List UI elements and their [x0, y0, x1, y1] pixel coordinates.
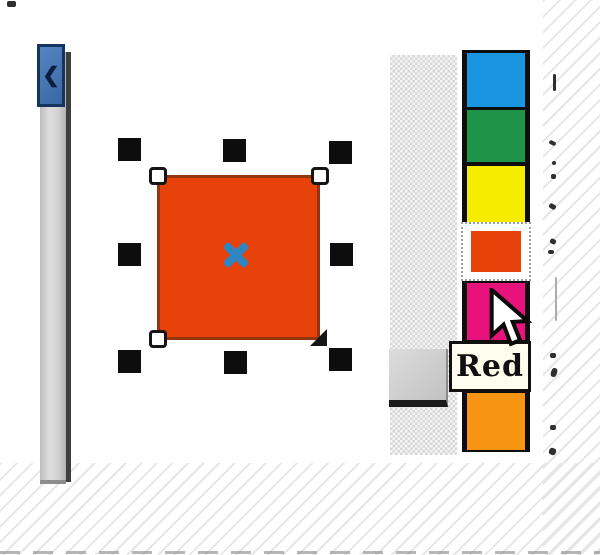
palette-swatch-red-fill	[471, 231, 521, 272]
artifact-mark	[7, 1, 16, 7]
corner-node-top-right[interactable]	[311, 167, 329, 185]
palette-scroll-button[interactable]	[389, 349, 448, 407]
artifact-mark	[553, 74, 556, 91]
vertical-scrollbar[interactable]	[40, 52, 66, 484]
palette-swatch-blue[interactable]	[467, 53, 525, 107]
cursor-arrow-icon	[488, 288, 532, 354]
selection-handle-mid-right[interactable]	[330, 243, 353, 266]
corner-node-top-left[interactable]	[149, 167, 167, 185]
app-canvas-screenshot: ❮ Red	[0, 0, 600, 555]
tooltip-text: Red	[456, 349, 524, 384]
artifact-mark	[551, 174, 556, 179]
artifact-mark	[550, 425, 556, 430]
palette-swatch-yellow[interactable]	[467, 166, 525, 222]
palette-swatch-red-selected[interactable]	[461, 222, 531, 281]
selection-handle-bottom-center[interactable]	[224, 351, 247, 374]
artifact-mark	[548, 250, 554, 254]
selection-handle-top-center[interactable]	[223, 139, 246, 162]
artifact-mark	[552, 161, 556, 165]
selection-handle-bottom-left[interactable]	[118, 350, 141, 373]
center-marker-icon[interactable]	[221, 240, 251, 270]
palette-swatch-orange[interactable]	[467, 393, 525, 450]
palette-swatch-green[interactable]	[467, 110, 525, 162]
selection-handle-top-left[interactable]	[118, 138, 141, 161]
chevron-left-icon: ❮	[42, 65, 60, 86]
artifact-mark	[550, 353, 556, 358]
page-edge-dashes	[0, 551, 600, 554]
toolbar-button[interactable]: ❮	[37, 44, 65, 107]
vertical-scrollbar-edge	[66, 52, 71, 482]
hatch-region-bottom	[0, 463, 600, 555]
artifact-mark	[555, 277, 557, 321]
selection-handle-top-right[interactable]	[329, 141, 352, 164]
selection-handle-bottom-right[interactable]	[329, 348, 352, 371]
selection-handle-mid-left[interactable]	[118, 243, 141, 266]
corner-node-bottom-left[interactable]	[149, 330, 167, 348]
